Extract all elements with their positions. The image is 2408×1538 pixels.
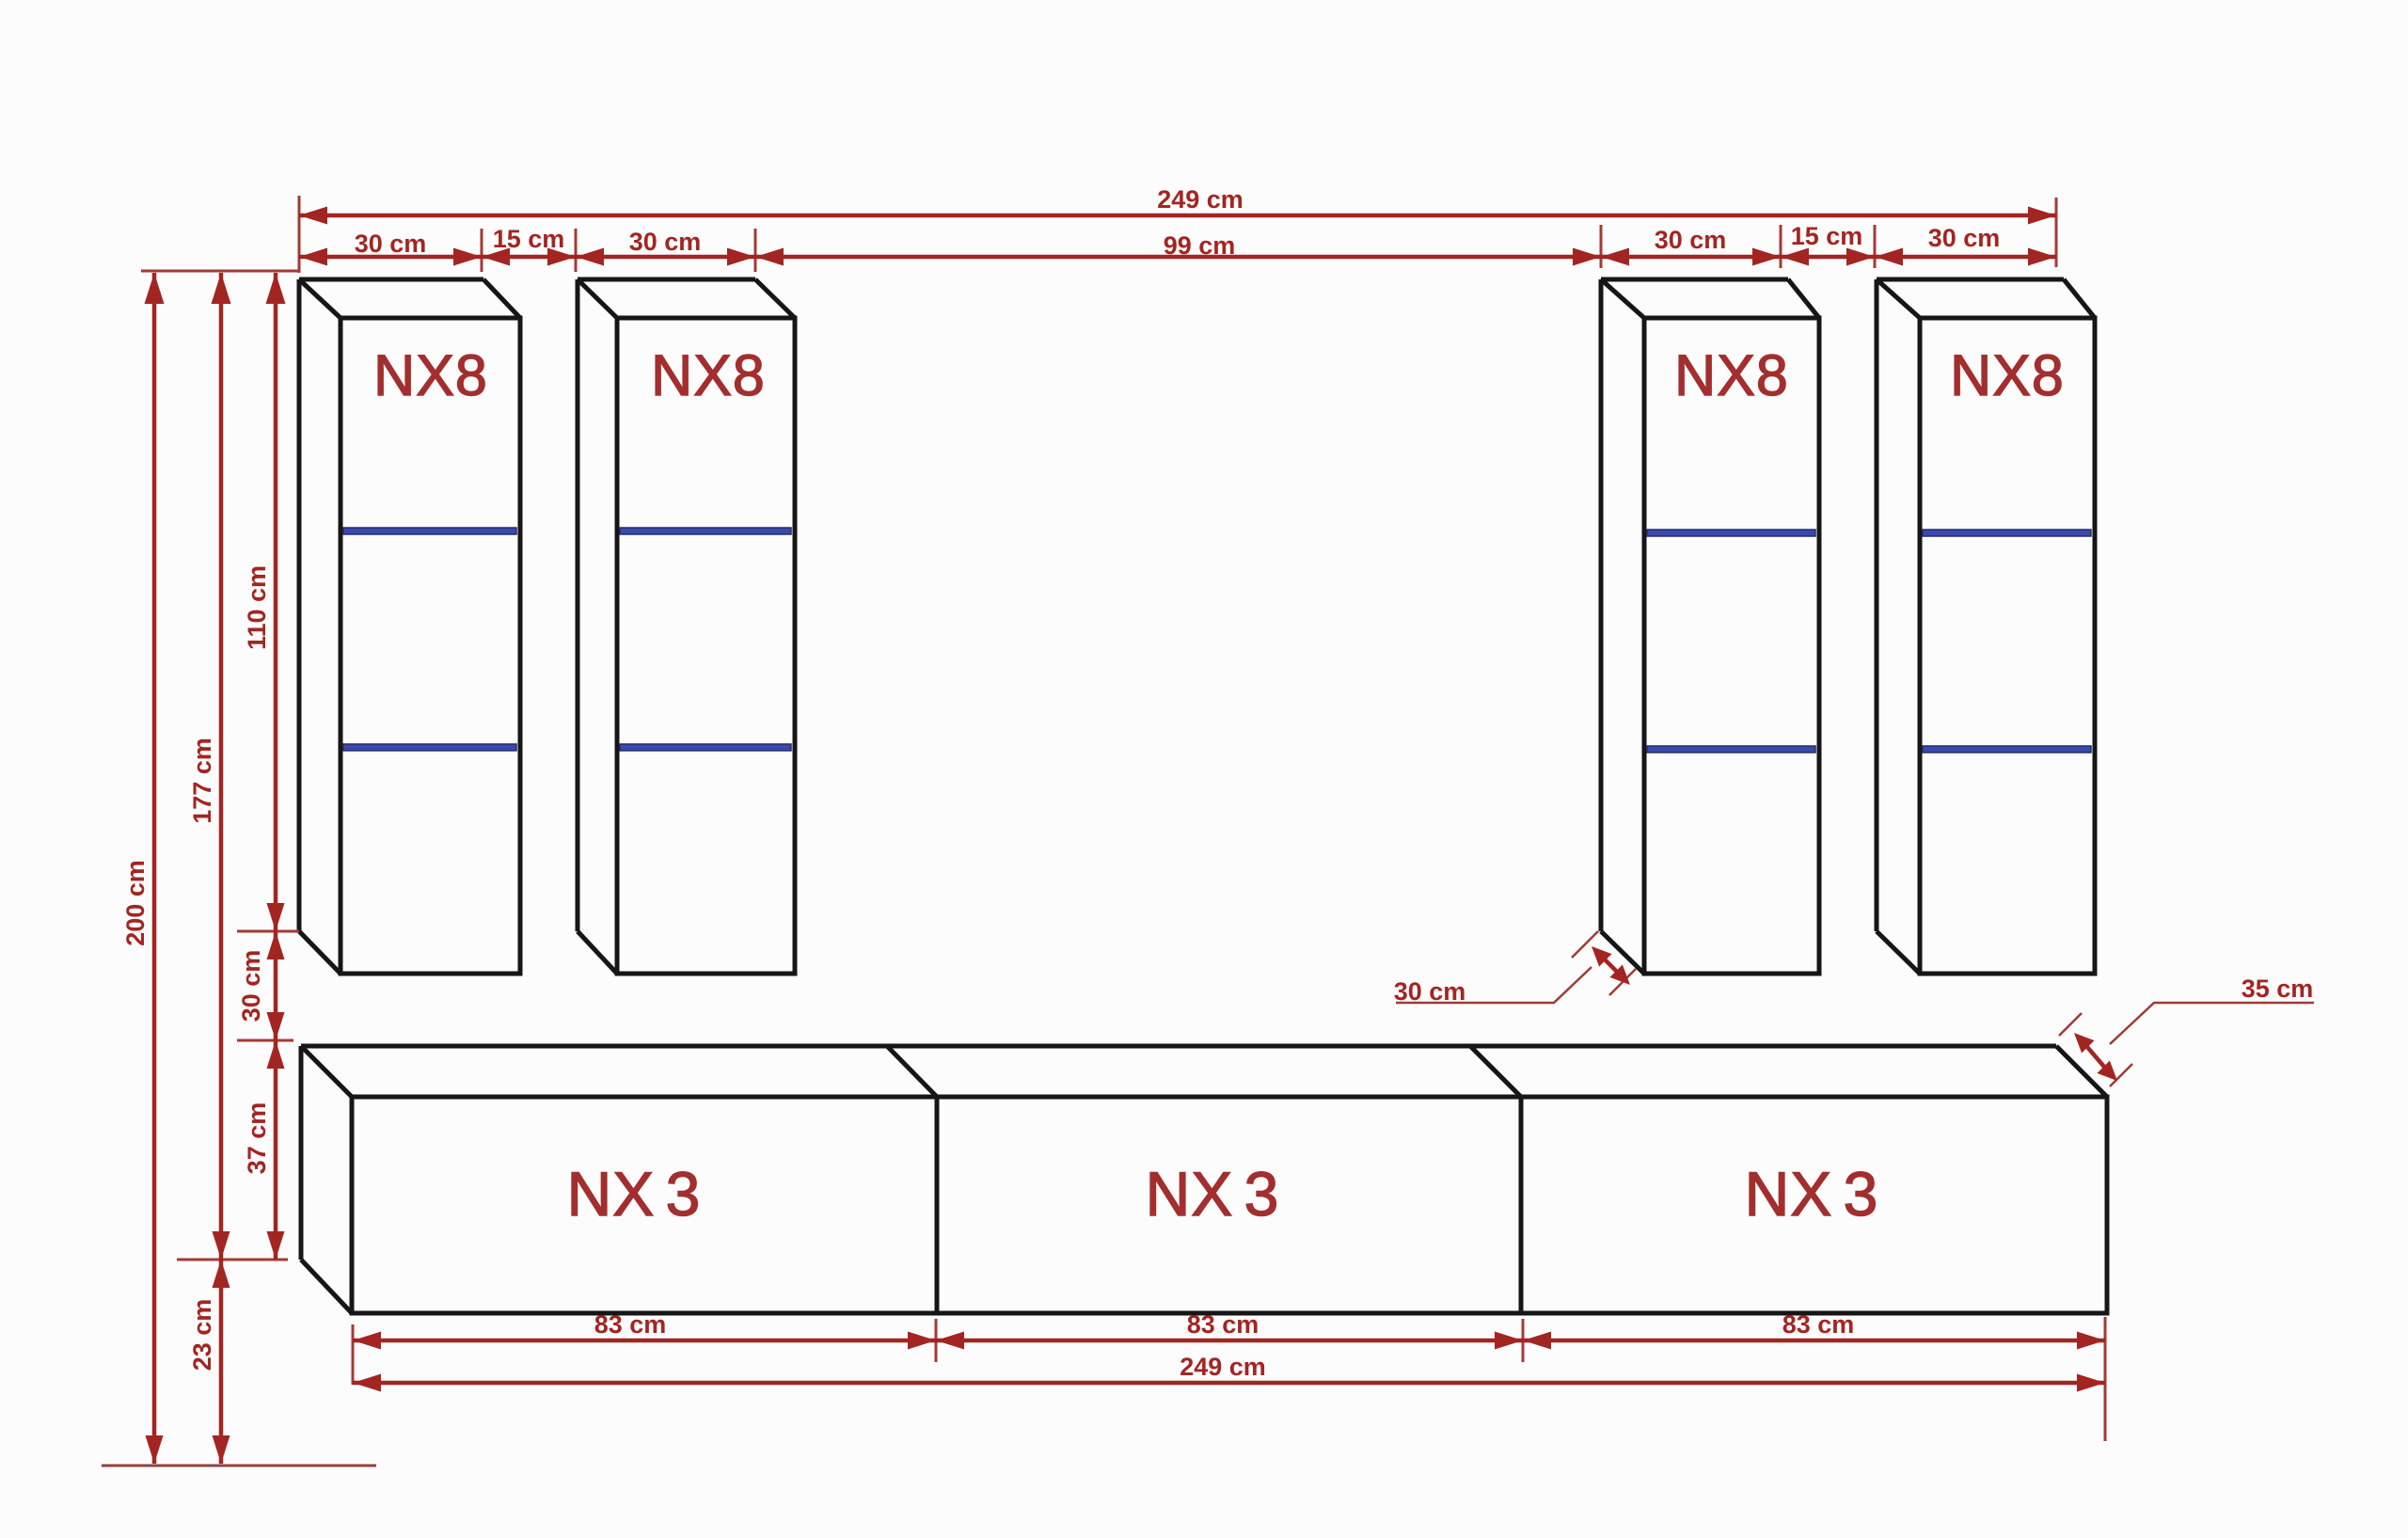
svg-text:23 cm: 23 cm [188,1299,216,1372]
svg-text:99 cm: 99 cm [1164,231,1236,260]
svg-text:83 cm: 83 cm [1187,1310,1259,1339]
svg-text:110 cm: 110 cm [243,565,271,650]
svg-text:30 cm: 30 cm [1928,224,2001,252]
svg-text:249 cm: 249 cm [1180,1353,1266,1381]
svg-text:30 cm: 30 cm [1655,226,1727,254]
svg-text:15 cm: 15 cm [1791,222,1863,250]
svg-text:15 cm: 15 cm [493,225,565,253]
svg-text:NX8: NX8 [1674,343,1789,407]
svg-text:30 cm: 30 cm [355,230,427,258]
svg-text:30 cm: 30 cm [629,228,702,256]
svg-text:177 cm: 177 cm [188,737,216,824]
svg-text:37 cm: 37 cm [243,1102,271,1175]
svg-text:83 cm: 83 cm [594,1310,667,1339]
svg-text:NX 3: NX 3 [1146,1159,1280,1229]
svg-text:NX 3: NX 3 [567,1159,702,1229]
svg-text:200 cm: 200 cm [121,860,150,946]
svg-text:35 cm: 35 cm [2242,975,2314,1003]
svg-text:NX8: NX8 [373,343,488,407]
svg-text:30 cm: 30 cm [1394,977,1466,1006]
svg-text:30 cm: 30 cm [237,950,265,1023]
svg-text:83 cm: 83 cm [1782,1310,1855,1339]
svg-text:249 cm: 249 cm [1157,185,1244,214]
svg-text:NX8: NX8 [651,343,766,407]
svg-text:NX8: NX8 [1950,343,2065,407]
svg-text:NX 3: NX 3 [1745,1159,1879,1229]
